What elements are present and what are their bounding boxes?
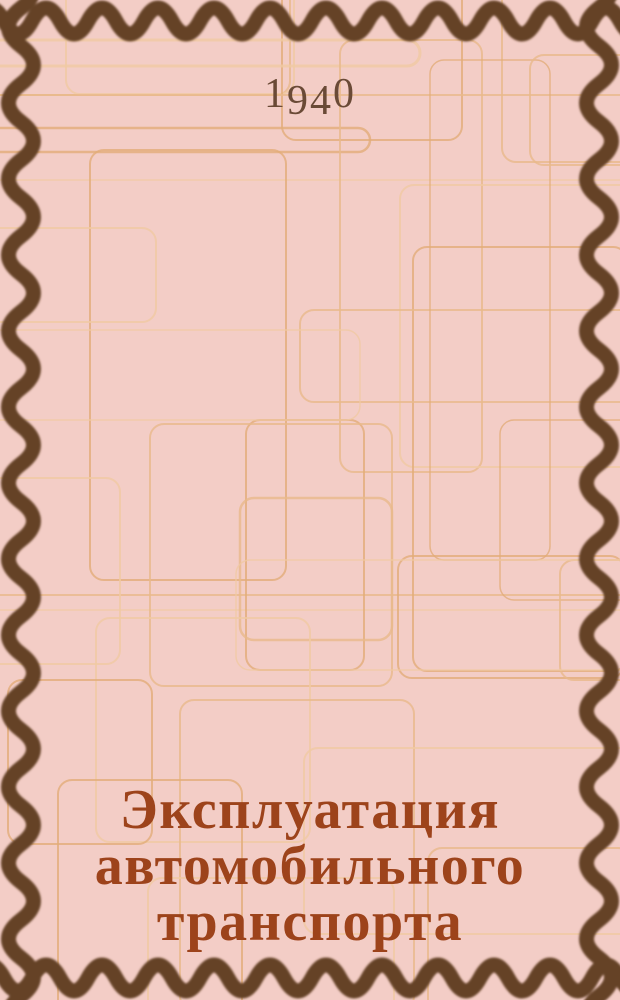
publication-year: 1940	[0, 70, 620, 118]
book-cover: 1940 Эксплуатация автомобильного транспо…	[0, 0, 620, 1000]
book-title: Эксплуатация автомобильного транспорта	[0, 782, 620, 950]
